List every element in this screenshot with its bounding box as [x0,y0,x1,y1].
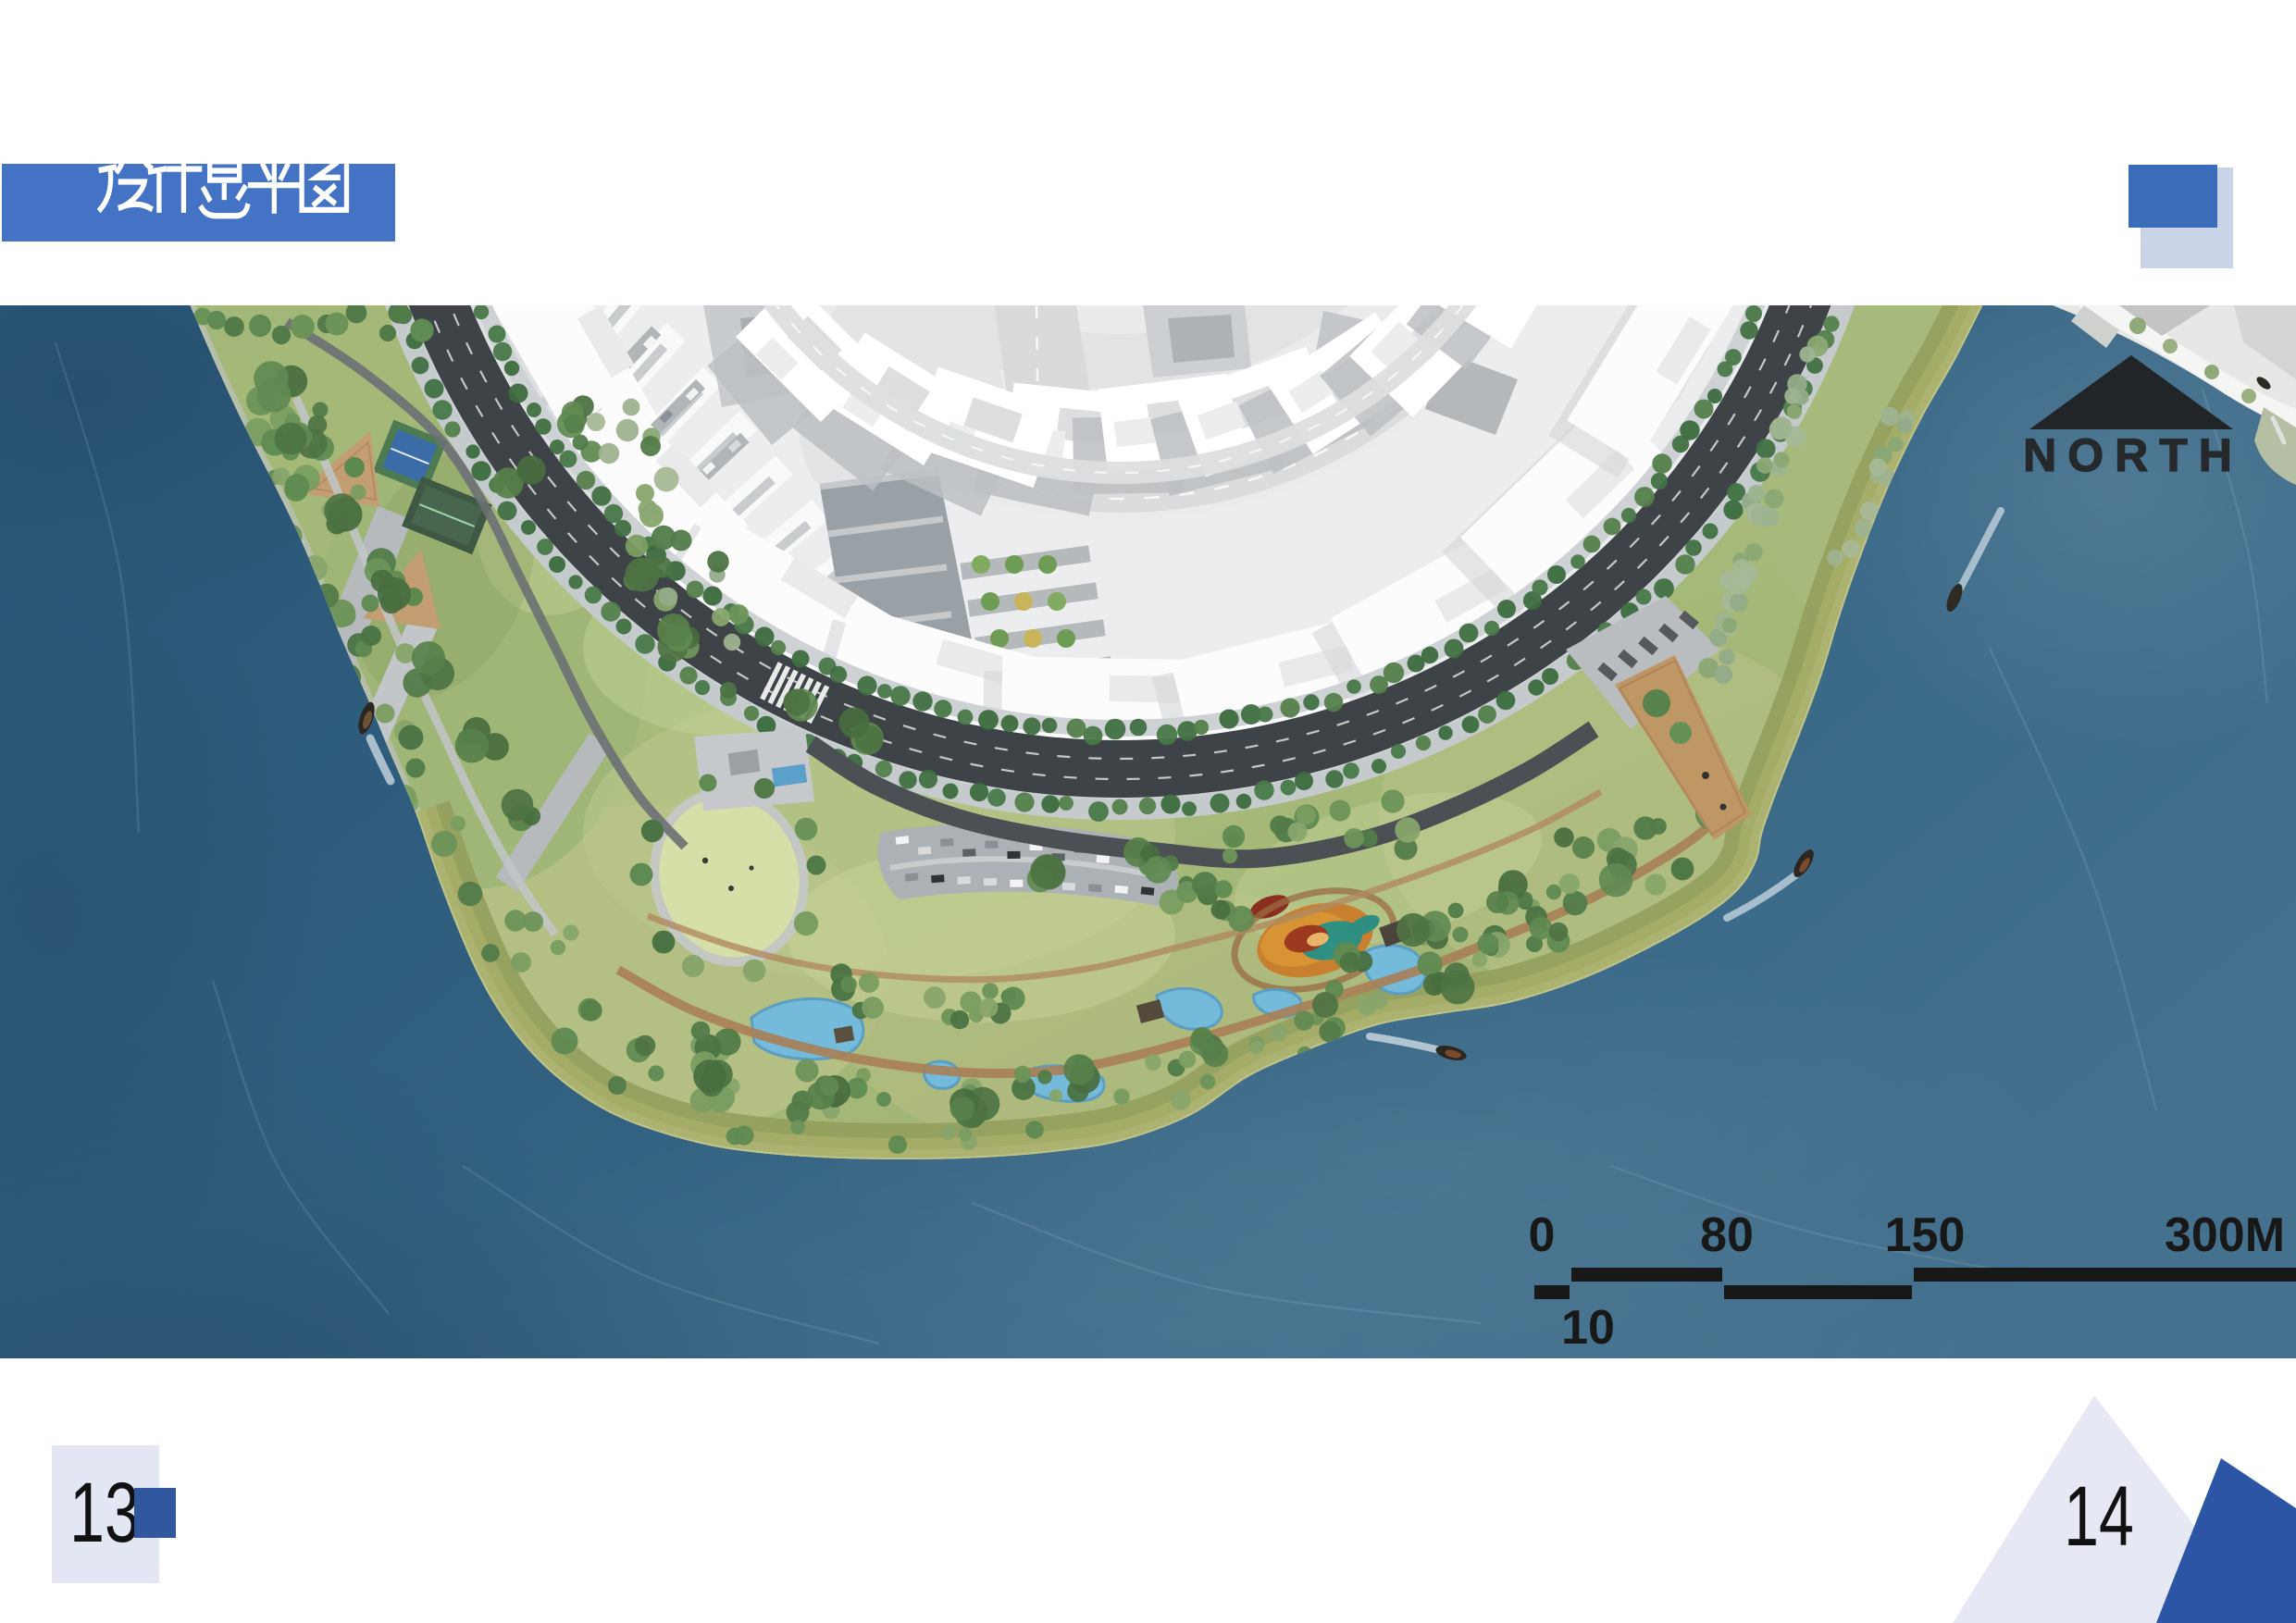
svg-text:150: 150 [1885,1208,1966,1262]
svg-text:300M: 300M [2165,1208,2285,1262]
svg-text:10: 10 [1561,1301,1615,1355]
svg-text:80: 80 [1700,1208,1754,1262]
svg-text:13: 13 [69,1466,140,1560]
svg-text:14: 14 [2064,1469,2134,1564]
svg-text:NORTH: NORTH [2023,429,2243,481]
svg-text:0: 0 [1529,1208,1556,1262]
